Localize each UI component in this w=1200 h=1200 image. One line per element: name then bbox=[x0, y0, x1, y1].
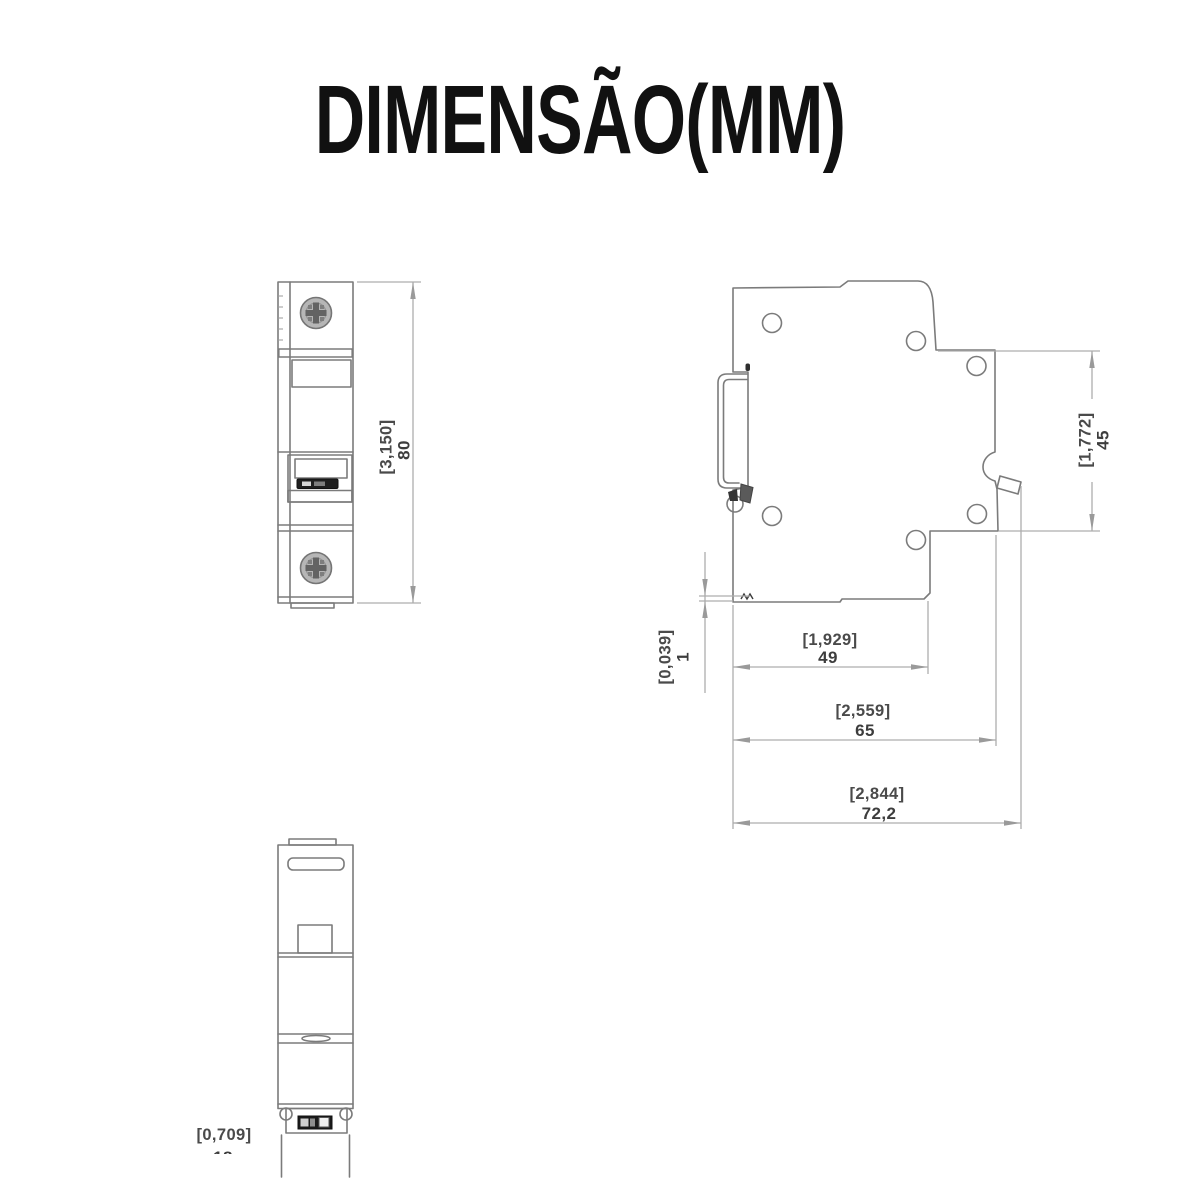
top-tab bbox=[289, 839, 336, 845]
dim-front-height-mm: 80 bbox=[395, 440, 414, 460]
screw-top-icon bbox=[301, 298, 332, 329]
dim-side-72-inch: [2,844] bbox=[849, 785, 904, 803]
bottom-view bbox=[278, 839, 353, 1177]
bottom-terminal bbox=[298, 1116, 332, 1129]
dim-front-height: [3,150] 80 bbox=[357, 282, 421, 603]
alignment-tab bbox=[298, 925, 332, 953]
vent-slot bbox=[288, 858, 344, 870]
technical-drawing-canvas: [3,150] 80 bbox=[0, 0, 1200, 1200]
side-view bbox=[718, 281, 1021, 602]
rail-stop-tooth bbox=[746, 364, 751, 372]
dim-front-height-inch: [3,150] bbox=[378, 419, 396, 474]
dim-side-1-inch: [0,039] bbox=[657, 629, 675, 684]
dim-bottom-width: [0,709] 18 bbox=[196, 1126, 251, 1167]
dimension-drawing-page: DIMENSÃO(MM) bbox=[0, 0, 1200, 1200]
dim-side-72: [2,844] 72,2 bbox=[733, 486, 1021, 829]
dim-side-49-inch: [1,929] bbox=[802, 631, 857, 649]
dim-side-65: [2,559] 65 bbox=[733, 535, 996, 746]
dim-side-1: [0,039] 1 bbox=[657, 552, 751, 693]
dim-side-72-mm: 72,2 bbox=[862, 804, 897, 823]
dim-side-45-inch: [1,772] bbox=[1077, 412, 1095, 467]
screw-bottom-icon bbox=[301, 553, 332, 584]
dim-side-45: [1,772] 45 bbox=[938, 351, 1113, 531]
dim-side-49-mm: 49 bbox=[818, 648, 838, 667]
dim-side-1-mm: 1 bbox=[674, 652, 693, 662]
dim-side-65-mm: 65 bbox=[855, 721, 875, 740]
dim-bottom-width-inch: [0,709] bbox=[196, 1126, 251, 1144]
mounting-holes bbox=[763, 314, 987, 550]
din-latch-tab bbox=[997, 476, 1021, 494]
dim-side-45-mm: 45 bbox=[1094, 430, 1113, 450]
label-window bbox=[292, 360, 351, 387]
dim-side-65-inch: [2,559] bbox=[835, 702, 890, 720]
dim-bottom-width-mm: 18 bbox=[213, 1148, 233, 1167]
front-view bbox=[278, 282, 353, 608]
